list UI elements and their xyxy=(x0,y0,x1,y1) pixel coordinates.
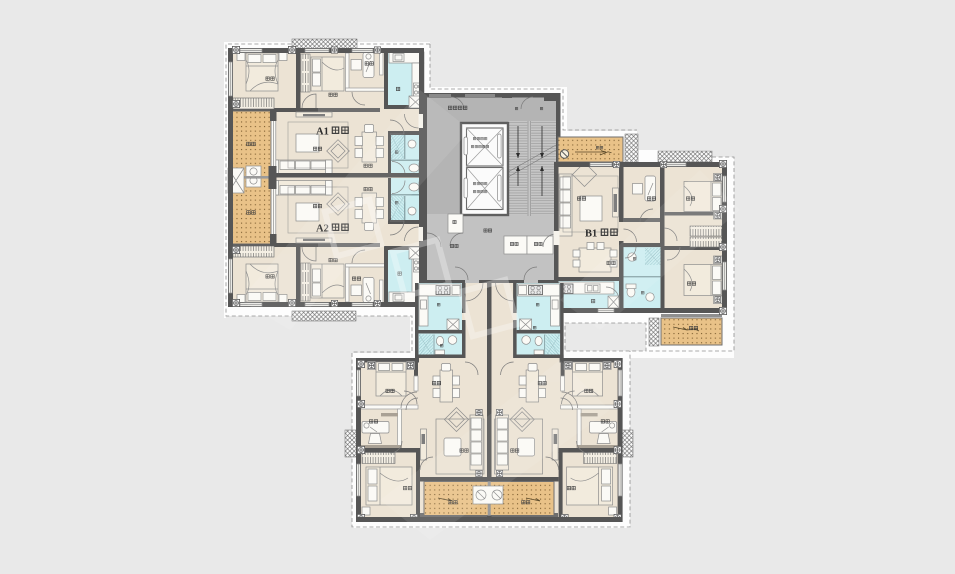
svg-text:B1: B1 xyxy=(585,229,597,240)
svg-text:A1: A1 xyxy=(316,127,329,138)
